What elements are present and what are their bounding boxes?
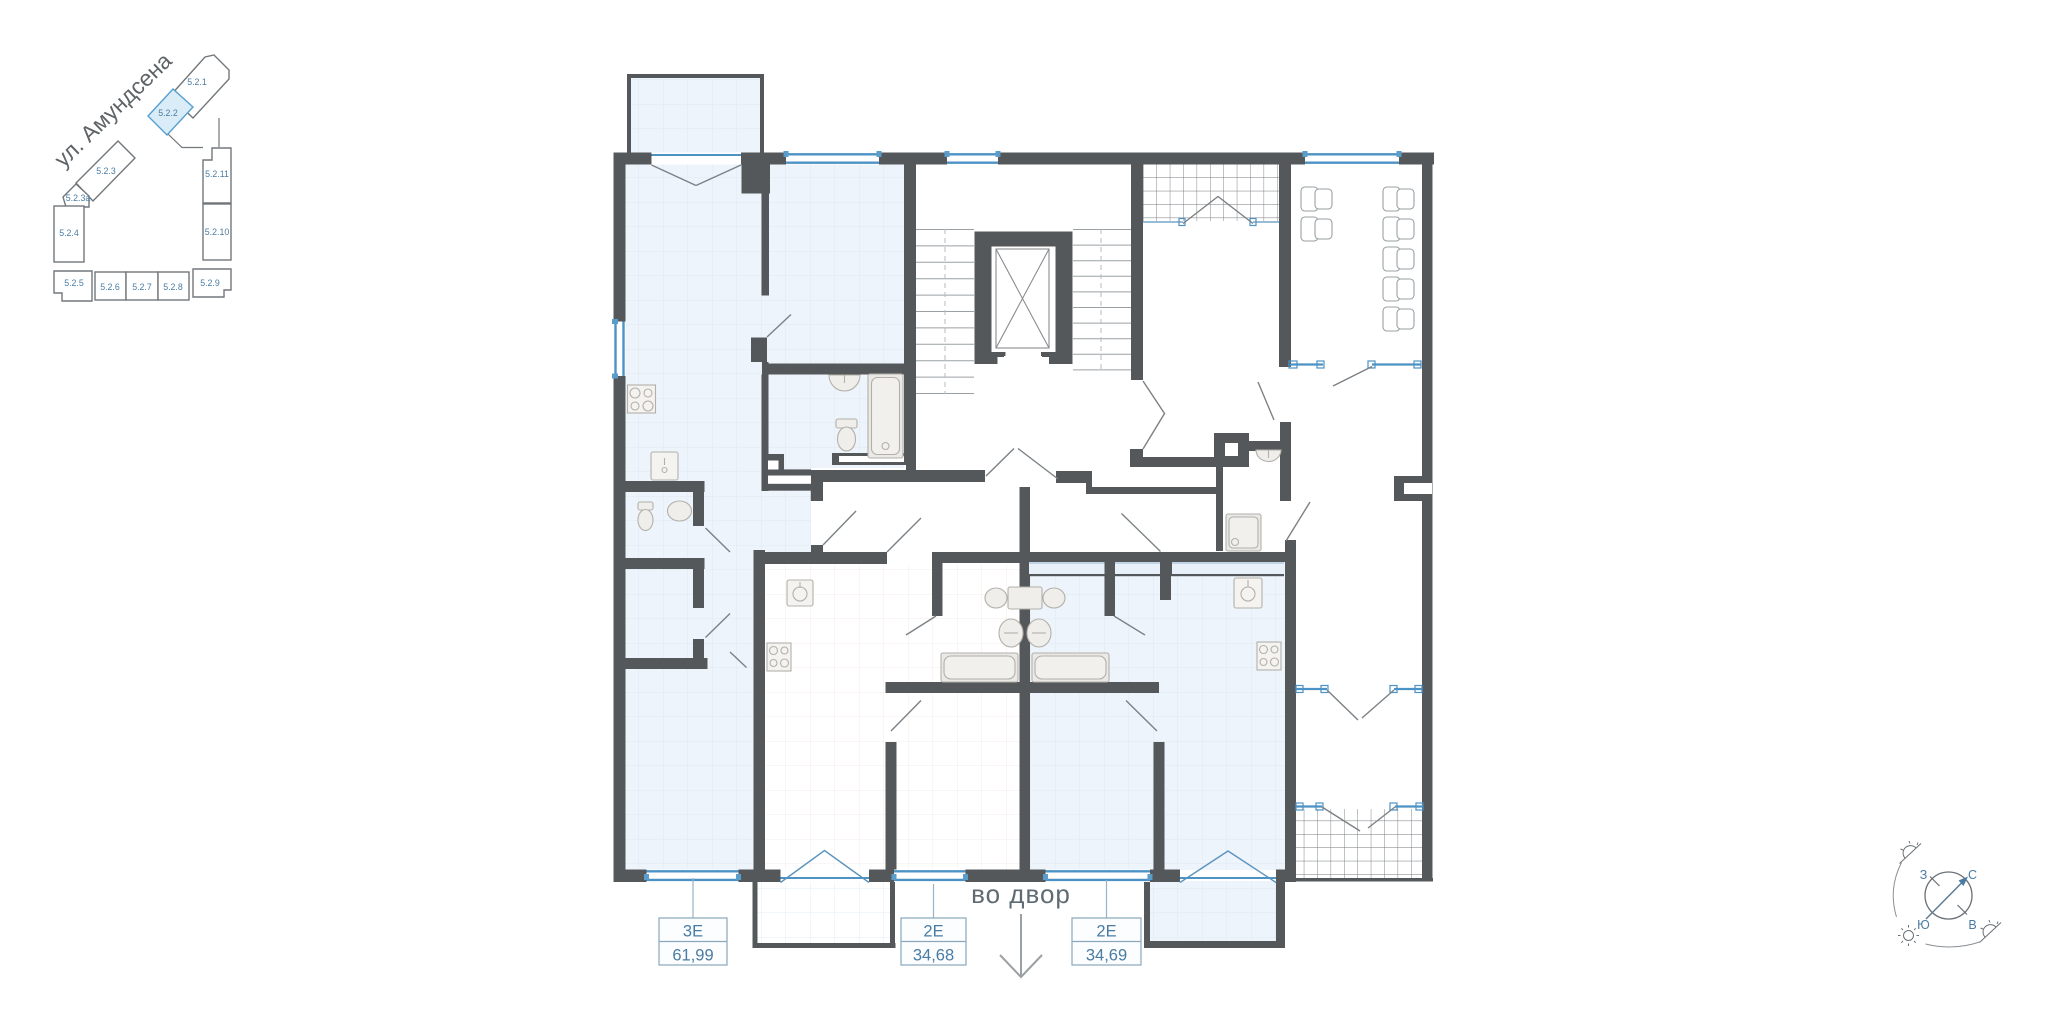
- svg-text:61,99: 61,99: [672, 947, 713, 965]
- svg-text:во двор: во двор: [971, 879, 1071, 909]
- svg-text:5.2.5: 5.2.5: [64, 278, 84, 288]
- svg-text:З: З: [1920, 868, 1928, 882]
- svg-text:5.2.7: 5.2.7: [132, 282, 152, 292]
- svg-text:5.2.8: 5.2.8: [163, 282, 183, 292]
- svg-text:5.2.11: 5.2.11: [205, 169, 229, 179]
- svg-text:34,68: 34,68: [913, 947, 954, 965]
- svg-text:5.2.3а: 5.2.3а: [66, 193, 91, 203]
- svg-text:5.2.2: 5.2.2: [158, 108, 178, 118]
- svg-text:5.2.1: 5.2.1: [187, 77, 207, 87]
- svg-text:5.2.4: 5.2.4: [59, 228, 79, 238]
- svg-text:5.2.3: 5.2.3: [96, 166, 116, 176]
- svg-text:В: В: [1968, 918, 1976, 932]
- svg-text:3Е: 3Е: [683, 923, 703, 941]
- svg-text:С: С: [1968, 868, 1977, 882]
- svg-text:5.2.9: 5.2.9: [200, 278, 220, 288]
- svg-text:5.2.6: 5.2.6: [100, 282, 120, 292]
- svg-text:2Е: 2Е: [1096, 923, 1116, 941]
- svg-text:34,69: 34,69: [1086, 947, 1127, 965]
- svg-text:5.2.10: 5.2.10: [205, 227, 230, 237]
- svg-text:Ю: Ю: [1917, 918, 1930, 932]
- svg-text:2Е: 2Е: [923, 923, 943, 941]
